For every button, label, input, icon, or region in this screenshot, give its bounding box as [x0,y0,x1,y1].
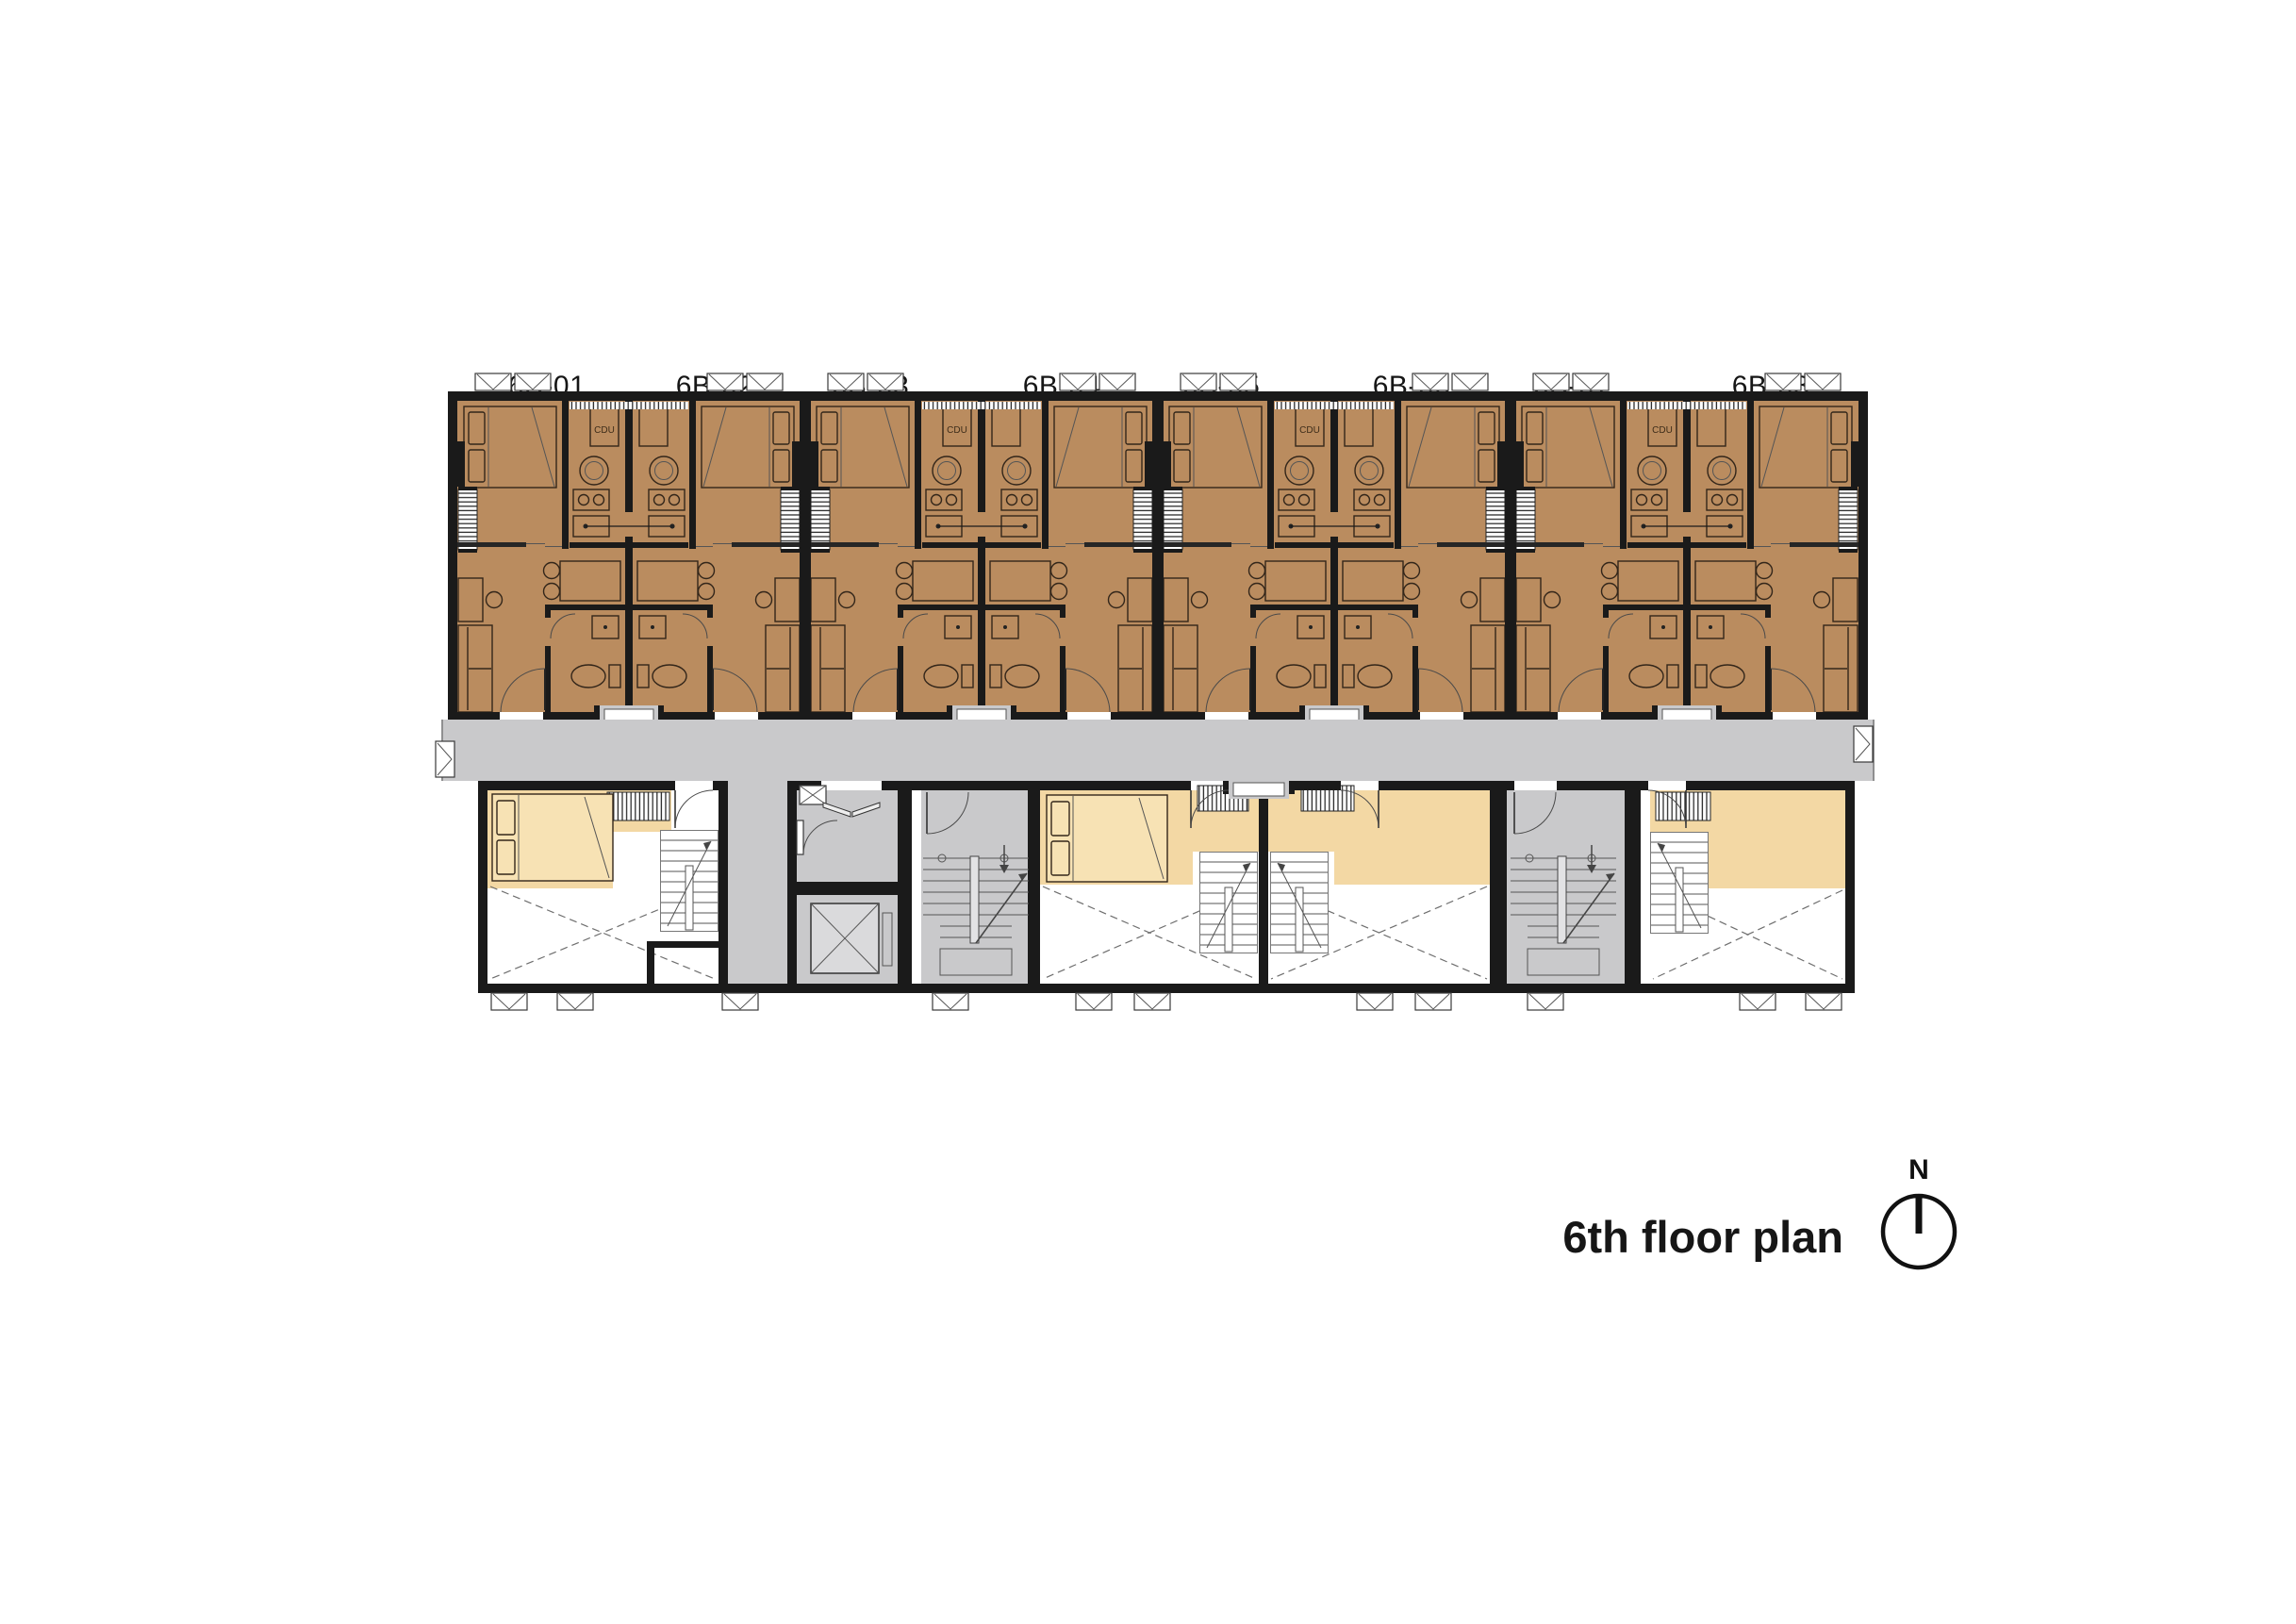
upper-units-band [448,373,1868,732]
north-indicator: N [1872,1156,1966,1279]
floor-plan-drawing: CDU [434,368,1886,1028]
drawing-title-text: 6th floor plan [1562,1212,1843,1262]
floor-plan-page: 6B-0128.62 6B-0228.20 6B-0328.20 6B-0428… [0,0,2296,1624]
north-arrow-icon [1872,1185,1966,1274]
drawing-title: 6th floor plan [1495,1211,1843,1263]
north-label: N [1872,1156,1966,1185]
meter-alcove [1223,779,1295,799]
corridor [436,720,1875,781]
south-windows [491,993,1842,1010]
